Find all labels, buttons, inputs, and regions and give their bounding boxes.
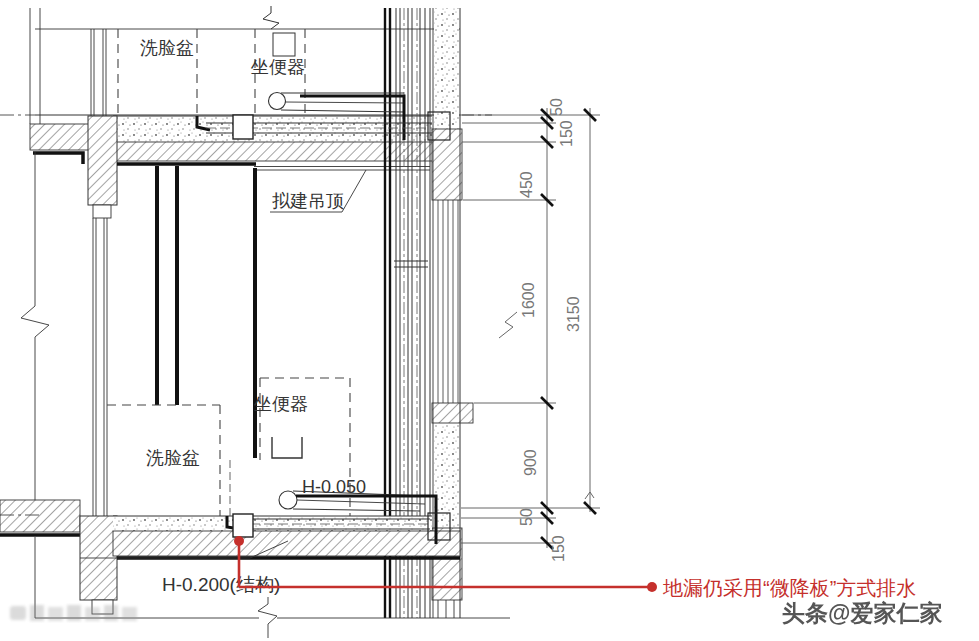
dim-break-symbol bbox=[499, 312, 517, 338]
upper-toilet-pipe-cap bbox=[269, 93, 286, 110]
dim-3150-overall: 3150 bbox=[565, 296, 582, 332]
dim-450: 450 bbox=[518, 171, 535, 198]
lower-left-slab bbox=[0, 500, 80, 532]
dimension-labels: 50 150 450 1600 3150 900 50 150 bbox=[518, 98, 582, 562]
dim-50-bottom: 50 bbox=[518, 508, 535, 526]
outer-dim-break-mark bbox=[585, 492, 594, 499]
dim-900: 900 bbox=[522, 449, 539, 476]
lower-toilet-pipe-cap bbox=[279, 491, 297, 509]
upper-floor-drain-fitting bbox=[233, 115, 253, 139]
upper-toilet-stub bbox=[273, 33, 295, 56]
dim-1600: 1600 bbox=[520, 282, 537, 318]
break-symbol-left bbox=[21, 306, 49, 337]
right-wall-ledge bbox=[432, 403, 473, 423]
label-level-floor: H-0.200(结构) bbox=[162, 574, 280, 595]
watermark-text: 头条@爱家仁家 bbox=[782, 600, 942, 626]
floor-drain-fitting bbox=[233, 514, 253, 537]
watermark-left-illegible bbox=[10, 605, 137, 621]
lower-toilet-outlet bbox=[272, 437, 302, 458]
lower-slab-hatch bbox=[113, 531, 460, 556]
drawing-canvas: 50 150 450 1600 3150 900 50 150 洗脸盆 坐便器 … bbox=[0, 0, 979, 641]
plumbing-section-drawing: 50 150 450 1600 3150 900 50 150 洗脸盆 坐便器 … bbox=[0, 0, 979, 641]
annotation-endpoint bbox=[647, 582, 657, 592]
label-upper-toilet: 坐便器 bbox=[250, 57, 305, 77]
dim-150-top: 150 bbox=[558, 120, 575, 147]
ceiling-leader-line bbox=[342, 170, 366, 212]
label-lower-toilet: 坐便器 bbox=[253, 394, 308, 414]
break-symbol-bottom bbox=[258, 597, 277, 638]
upper-ceiling-step-line bbox=[33, 153, 83, 164]
upper-beam bbox=[88, 116, 117, 205]
label-lower-basin: 洗脸盆 bbox=[146, 448, 200, 468]
annotation-text: 地漏仍采用“微降板”方式排水 bbox=[662, 577, 916, 599]
label-upper-basin: 洗脸盆 bbox=[140, 38, 194, 58]
label-level-mid: H-0.050 bbox=[302, 477, 366, 497]
vertical-drop-pipes bbox=[157, 166, 255, 458]
dim-50-top: 50 bbox=[548, 98, 565, 116]
break-symbol-top bbox=[263, 6, 279, 29]
label-proposed-ceiling: 拟建吊顶 bbox=[272, 191, 344, 211]
upper-left-slab bbox=[30, 124, 90, 150]
dim-150-bottom: 150 bbox=[550, 535, 567, 562]
